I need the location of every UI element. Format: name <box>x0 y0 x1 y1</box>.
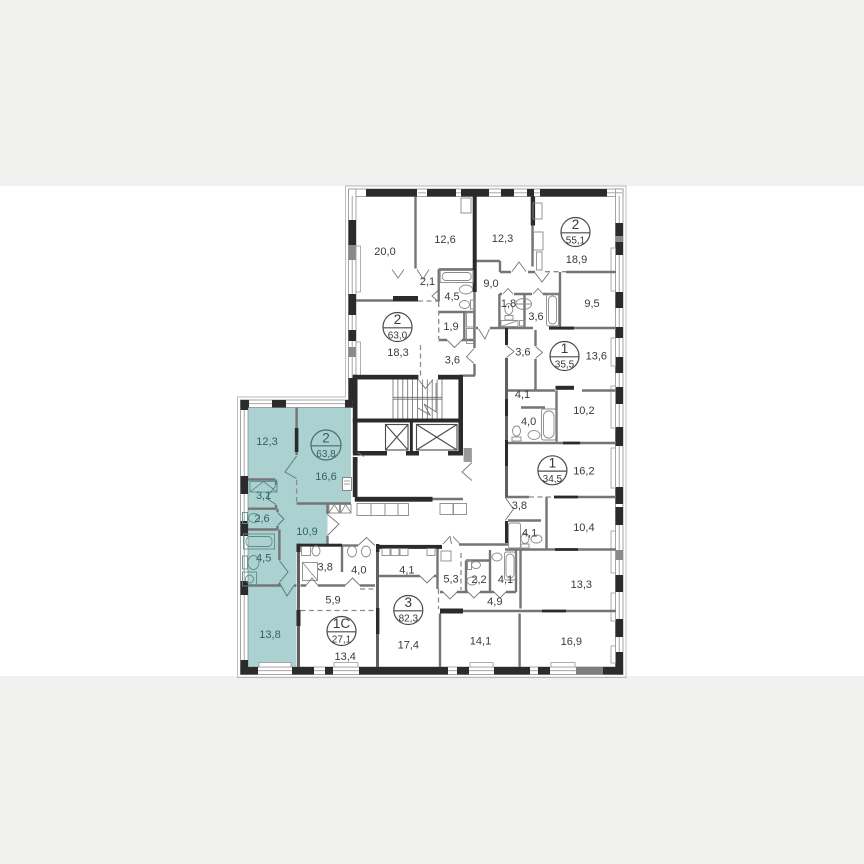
svg-text:1,8: 1,8 <box>501 298 516 310</box>
svg-text:5,9: 5,9 <box>325 595 340 607</box>
svg-text:1C: 1C <box>333 616 351 631</box>
svg-text:63,8: 63,8 <box>316 449 336 460</box>
svg-text:16,6: 16,6 <box>315 471 336 483</box>
svg-text:13,4: 13,4 <box>334 651 355 663</box>
svg-text:13,8: 13,8 <box>259 629 280 641</box>
svg-text:12,3: 12,3 <box>492 233 513 245</box>
svg-text:1: 1 <box>549 455 557 470</box>
svg-text:1: 1 <box>561 341 569 356</box>
svg-text:35,5: 35,5 <box>555 360 575 371</box>
svg-text:3,6: 3,6 <box>515 347 530 359</box>
svg-text:4,0: 4,0 <box>351 565 366 577</box>
svg-text:10,2: 10,2 <box>573 405 594 417</box>
svg-text:14,1: 14,1 <box>470 636 491 648</box>
svg-text:4,1: 4,1 <box>515 389 530 401</box>
svg-text:12,6: 12,6 <box>434 234 455 246</box>
svg-text:2,6: 2,6 <box>254 513 269 525</box>
svg-text:2: 2 <box>322 431 330 446</box>
svg-text:4,5: 4,5 <box>256 553 271 565</box>
svg-text:82,3: 82,3 <box>399 614 419 625</box>
svg-text:5,3: 5,3 <box>443 574 458 586</box>
svg-text:4,0: 4,0 <box>521 416 536 428</box>
svg-text:3,6: 3,6 <box>445 355 460 367</box>
svg-text:12,3: 12,3 <box>256 436 277 448</box>
svg-text:13,3: 13,3 <box>571 579 592 591</box>
svg-text:63,0: 63,0 <box>388 331 408 342</box>
svg-text:1,9: 1,9 <box>443 321 458 333</box>
svg-text:4,9: 4,9 <box>487 596 502 608</box>
svg-text:55,1: 55,1 <box>566 236 586 247</box>
svg-text:17,4: 17,4 <box>398 640 419 652</box>
svg-text:3,8: 3,8 <box>512 500 527 512</box>
svg-text:4,5: 4,5 <box>444 291 459 303</box>
svg-text:2,1: 2,1 <box>420 276 435 288</box>
svg-text:18,3: 18,3 <box>387 347 408 359</box>
svg-text:4,1: 4,1 <box>522 528 537 540</box>
svg-text:2: 2 <box>394 312 402 327</box>
svg-text:16,9: 16,9 <box>561 636 582 648</box>
svg-text:2: 2 <box>572 217 580 232</box>
svg-text:16,2: 16,2 <box>573 466 594 478</box>
svg-text:4,1: 4,1 <box>399 565 414 577</box>
svg-text:18,9: 18,9 <box>566 254 587 266</box>
svg-text:3,6: 3,6 <box>528 311 543 323</box>
svg-text:3,1: 3,1 <box>256 490 271 502</box>
svg-text:3,8: 3,8 <box>318 561 333 573</box>
svg-text:9,0: 9,0 <box>483 278 498 290</box>
svg-text:2,2: 2,2 <box>471 574 486 586</box>
svg-text:9,5: 9,5 <box>584 298 599 310</box>
svg-text:10,4: 10,4 <box>573 522 594 534</box>
svg-text:4,1: 4,1 <box>498 574 513 586</box>
svg-text:34,5: 34,5 <box>543 474 563 485</box>
svg-text:13,6: 13,6 <box>586 351 607 363</box>
svg-text:20,0: 20,0 <box>374 246 395 258</box>
svg-text:3: 3 <box>405 595 413 610</box>
svg-text:10,9: 10,9 <box>296 526 317 538</box>
svg-text:27,1: 27,1 <box>332 635 352 646</box>
